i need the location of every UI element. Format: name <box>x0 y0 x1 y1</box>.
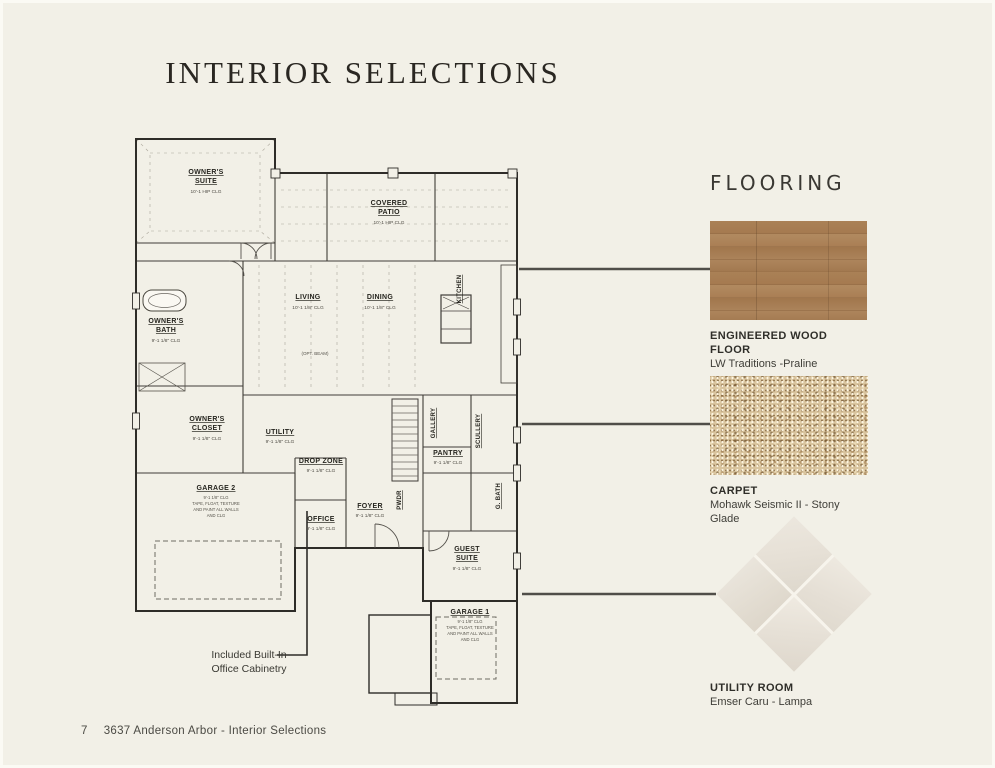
svg-text:9'-1 1/8" CLG: 9'-1 1/8" CLG <box>266 439 295 445</box>
svg-text:CLOSET: CLOSET <box>192 425 223 432</box>
room-label-garage-1: GARAGE 1 <box>451 609 490 616</box>
room-label-foyer: FOYER <box>357 503 383 510</box>
sample-name: UTILITY ROOM <box>710 681 878 695</box>
room-label-pwdr: PWDR <box>397 490 403 510</box>
svg-text:10'-1 HIP CLG: 10'-1 HIP CLG <box>374 220 405 226</box>
svg-text:SUITE: SUITE <box>456 555 478 562</box>
room-label-office: OFFICE <box>307 516 334 523</box>
svg-text:9'-1 1/8" CLG: 9'-1 1/8" CLG <box>434 460 463 466</box>
room-label-owners-suite: OWNER'S <box>188 169 223 176</box>
room-label-living: LIVING <box>295 294 320 301</box>
room-label-scullery: SCULLERY <box>476 414 482 449</box>
svg-text:SUITE: SUITE <box>195 178 217 185</box>
svg-text:9'-1 1/8" CLG: 9'-1 1/8" CLG <box>307 526 336 532</box>
room-label-owners-bath: OWNER'S <box>148 318 183 325</box>
opt-beam-label: (OPT. BEAM) <box>301 351 329 356</box>
interior-selections-page: INTERIOR SELECTIONS <box>0 0 995 768</box>
svg-text:9'-1 1/8" CLG: 9'-1 1/8" CLG <box>453 566 482 572</box>
svg-text:9'-1 1/8" CLG: 9'-1 1/8" CLG <box>457 619 482 624</box>
svg-text:10'-1 1/8" CLG: 10'-1 1/8" CLG <box>364 305 396 311</box>
room-label-gallery: GALLERY <box>431 408 437 439</box>
svg-text:Included Built-In: Included Built-In <box>211 649 286 661</box>
room-label-pantry: PANTRY <box>433 450 463 457</box>
sample-name: ENGINEERED WOOD FLOOR <box>710 329 868 357</box>
sample-name: CARPET <box>710 484 868 498</box>
tile-swatch <box>710 516 878 672</box>
page-number: 7 <box>81 725 88 737</box>
svg-text:AND PAINT ALL WALLS: AND PAINT ALL WALLS <box>193 507 239 512</box>
svg-text:TAPE, FLOAT, TEXTURE: TAPE, FLOAT, TEXTURE <box>192 501 240 506</box>
footer-text: 3637 Anderson Arbor - Interior Selection… <box>104 725 327 737</box>
room-label-dining: DINING <box>367 294 394 301</box>
room-labels: OWNER'S SUITE 10'-1 HIP CLG COVERED PATI… <box>148 169 502 642</box>
flooring-heading: FLOORING <box>710 171 846 195</box>
sample-product: Emser Caru - Lampa <box>710 695 878 709</box>
sample-carpet: CARPET Mohawk Seismic II - Stony Glade <box>710 376 868 526</box>
svg-text:AND PAINT ALL WALLS: AND PAINT ALL WALLS <box>447 631 493 636</box>
svg-text:BATH: BATH <box>156 327 176 334</box>
room-label-garage-2: GARAGE 2 <box>197 485 236 492</box>
wood-swatch <box>710 221 867 320</box>
room-label-covered-patio: COVERED <box>371 200 408 207</box>
room-label-kitchen: KITCHEN <box>457 275 463 304</box>
room-label-guest-suite: GUEST <box>454 546 480 553</box>
room-label-owners-closet: OWNER'S <box>189 416 224 423</box>
office-cabinetry-annotation: Included Built-In Office Cabinetry <box>211 649 287 675</box>
svg-text:9'-1 1/8" CLG: 9'-1 1/8" CLG <box>193 436 222 442</box>
svg-text:9'-1 1/8" CLG: 9'-1 1/8" CLG <box>356 513 385 519</box>
svg-text:9'-1 1/8" CLG: 9'-1 1/8" CLG <box>307 468 336 474</box>
carpet-swatch <box>710 376 868 475</box>
sample-product: LW Traditions -Praline <box>710 357 868 371</box>
svg-text:10'-1 1/8" CLG: 10'-1 1/8" CLG <box>292 305 324 311</box>
svg-text:TAPE, FLOAT, TEXTURE: TAPE, FLOAT, TEXTURE <box>446 625 494 630</box>
stairs <box>392 399 418 481</box>
kitchen-island <box>441 265 517 383</box>
room-label-guest-bath: G. BATH <box>496 483 502 509</box>
room-label-drop-zone: DROP ZONE <box>299 458 343 465</box>
room-label-utility: UTILITY <box>266 429 295 436</box>
svg-text:10'-1 HIP CLG: 10'-1 HIP CLG <box>191 189 222 195</box>
svg-text:9'-1 1/8" CLG: 9'-1 1/8" CLG <box>152 338 181 344</box>
svg-text:Office Cabinetry: Office Cabinetry <box>211 663 287 675</box>
sample-leader-lines <box>519 269 716 594</box>
svg-text:9'-1 1/8" CLG: 9'-1 1/8" CLG <box>203 495 228 500</box>
svg-text:PATIO: PATIO <box>378 209 400 216</box>
page-footer: 73637 Anderson Arbor - Interior Selectio… <box>81 725 326 737</box>
svg-text:AND CLG: AND CLG <box>461 637 480 642</box>
svg-text:AND CLG: AND CLG <box>207 513 226 518</box>
door-swings <box>229 243 449 551</box>
tile-diamond <box>716 516 872 672</box>
sample-engineered-wood: ENGINEERED WOOD FLOOR LW Traditions -Pra… <box>710 221 868 371</box>
sample-utility-tile: UTILITY ROOM Emser Caru - Lampa <box>710 516 878 709</box>
